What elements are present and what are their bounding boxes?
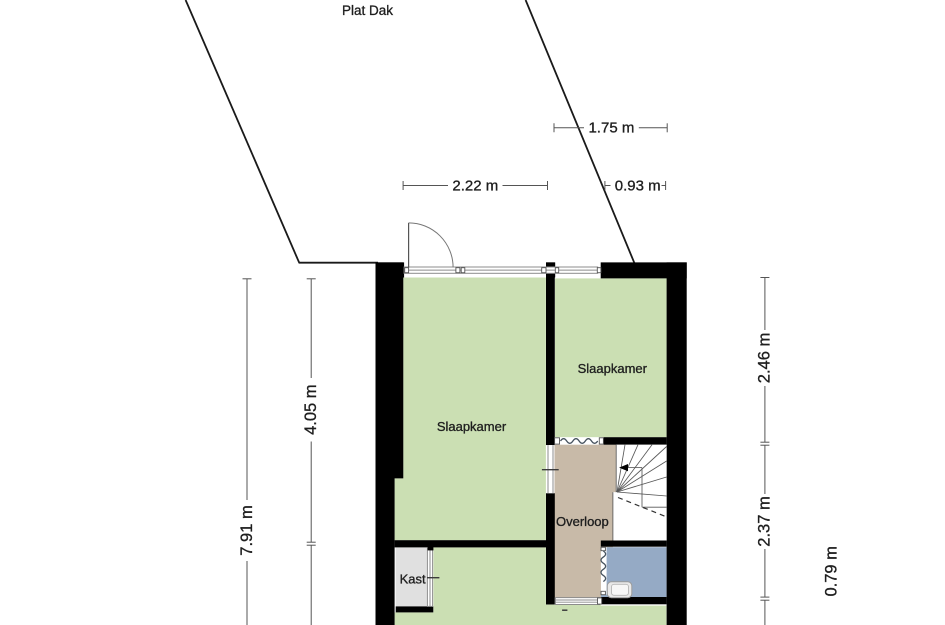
svg-text:Plat Dak: Plat Dak	[342, 3, 393, 18]
svg-text:Kast: Kast	[400, 571, 426, 586]
svg-text:0.79 m: 0.79 m	[823, 546, 841, 596]
svg-text:0.93 m: 0.93 m	[615, 177, 661, 194]
svg-text:Overloop: Overloop	[556, 514, 609, 529]
svg-text:4.05 m: 4.05 m	[302, 384, 320, 434]
svg-text:2.37 m: 2.37 m	[756, 496, 774, 546]
svg-text:2.46 m: 2.46 m	[756, 333, 774, 383]
svg-text:Slaapkamer: Slaapkamer	[437, 419, 507, 434]
svg-text:2.22 m: 2.22 m	[452, 177, 498, 194]
svg-text:7.91 m: 7.91 m	[238, 505, 256, 555]
svg-text:1.75 m: 1.75 m	[588, 120, 634, 137]
svg-text:Slaapkamer: Slaapkamer	[578, 361, 648, 376]
